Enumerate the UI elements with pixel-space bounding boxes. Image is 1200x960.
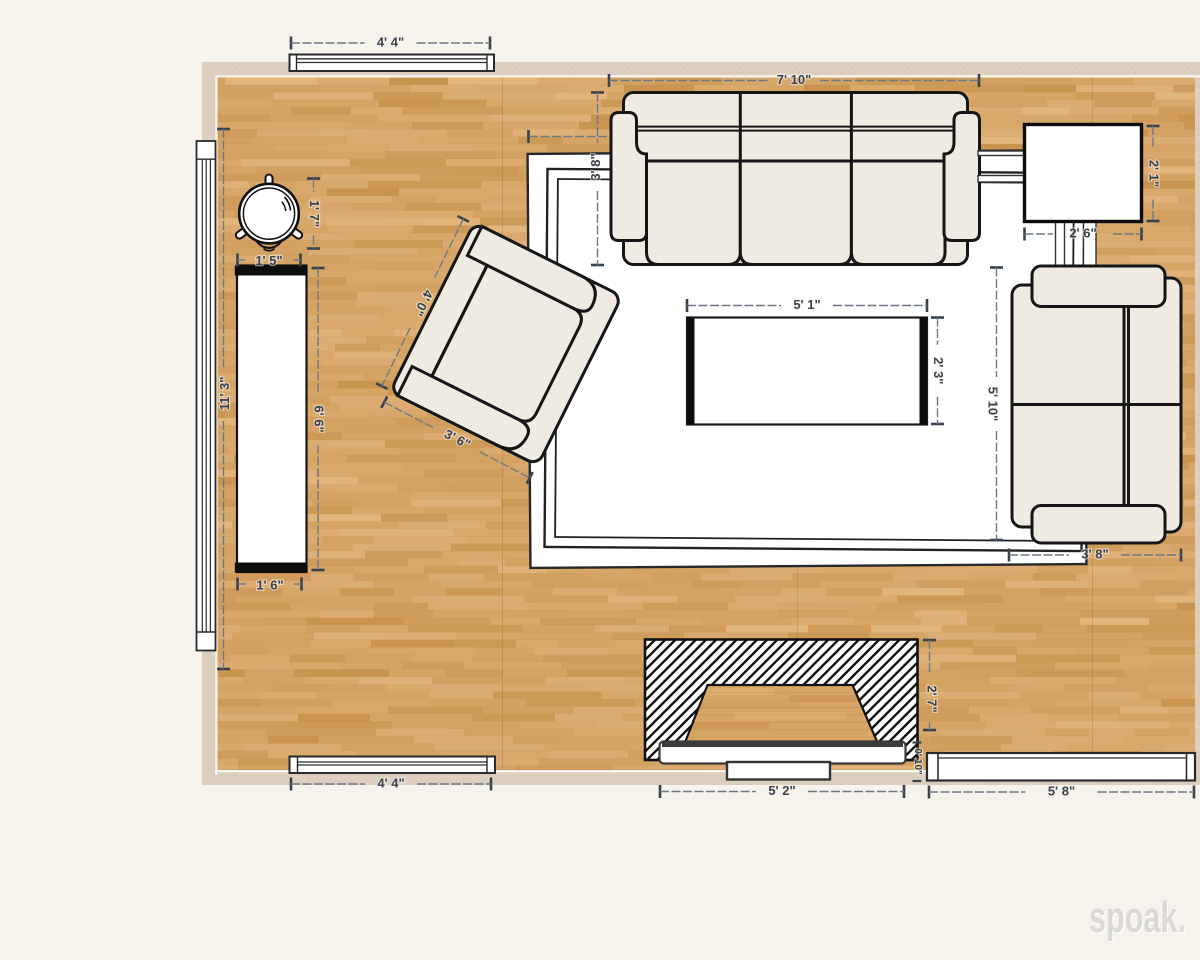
svg-text:2' 3": 2' 3" (931, 357, 946, 384)
svg-text:7' 10": 7' 10" (777, 72, 812, 87)
svg-text:2' 6": 2' 6" (1069, 225, 1096, 240)
svg-text:5' 10": 5' 10" (986, 387, 1001, 422)
svg-text:1' 5": 1' 5" (255, 253, 282, 268)
svg-text:4' 4": 4' 4" (377, 775, 404, 790)
svg-text:2' 7": 2' 7" (925, 685, 940, 712)
svg-text:0' 10": 0' 10" (912, 748, 923, 775)
svg-text:spoak.: spoak. (1089, 893, 1186, 942)
svg-text:4' 4": 4' 4" (377, 34, 404, 49)
svg-text:11' 3": 11' 3" (217, 377, 232, 411)
svg-text:1' 6": 1' 6" (256, 577, 283, 592)
svg-text:5' 2": 5' 2" (768, 783, 795, 798)
svg-text:3' 8": 3' 8" (588, 153, 603, 180)
svg-text:3' 8": 3' 8" (1081, 546, 1108, 561)
svg-text:5' 1": 5' 1" (793, 297, 820, 312)
svg-text:1' 7": 1' 7" (307, 200, 322, 227)
svg-text:2' 1": 2' 1" (1147, 160, 1162, 187)
svg-text:6' 6": 6' 6" (312, 405, 327, 432)
svg-text:5' 8": 5' 8" (1048, 783, 1075, 798)
